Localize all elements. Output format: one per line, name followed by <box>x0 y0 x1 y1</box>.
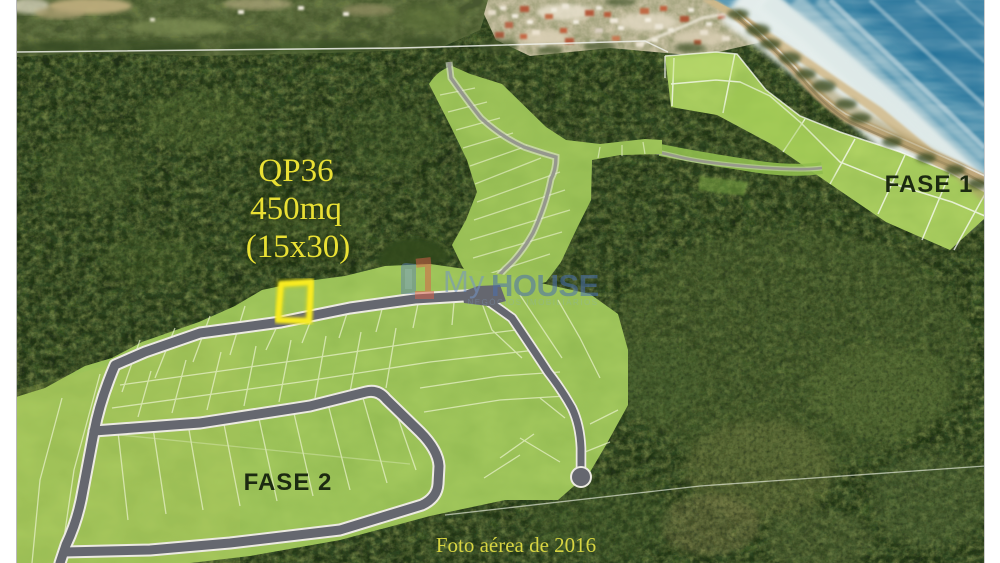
svg-text:My: My <box>443 264 485 299</box>
svg-text:FASE 2: FASE 2 <box>244 469 333 496</box>
svg-text:QP36: QP36 <box>258 153 333 189</box>
svg-text:FASE 1: FASE 1 <box>885 171 974 198</box>
svg-text:(15x30): (15x30) <box>246 229 350 265</box>
svg-text:NEGÓCIOS IMOBILIÁRIOS: NEGÓCIOS IMOBILIÁRIOS <box>467 298 598 307</box>
svg-text:Foto aérea de 2016: Foto aérea de 2016 <box>436 533 596 557</box>
svg-text:450mq: 450mq <box>250 191 342 227</box>
